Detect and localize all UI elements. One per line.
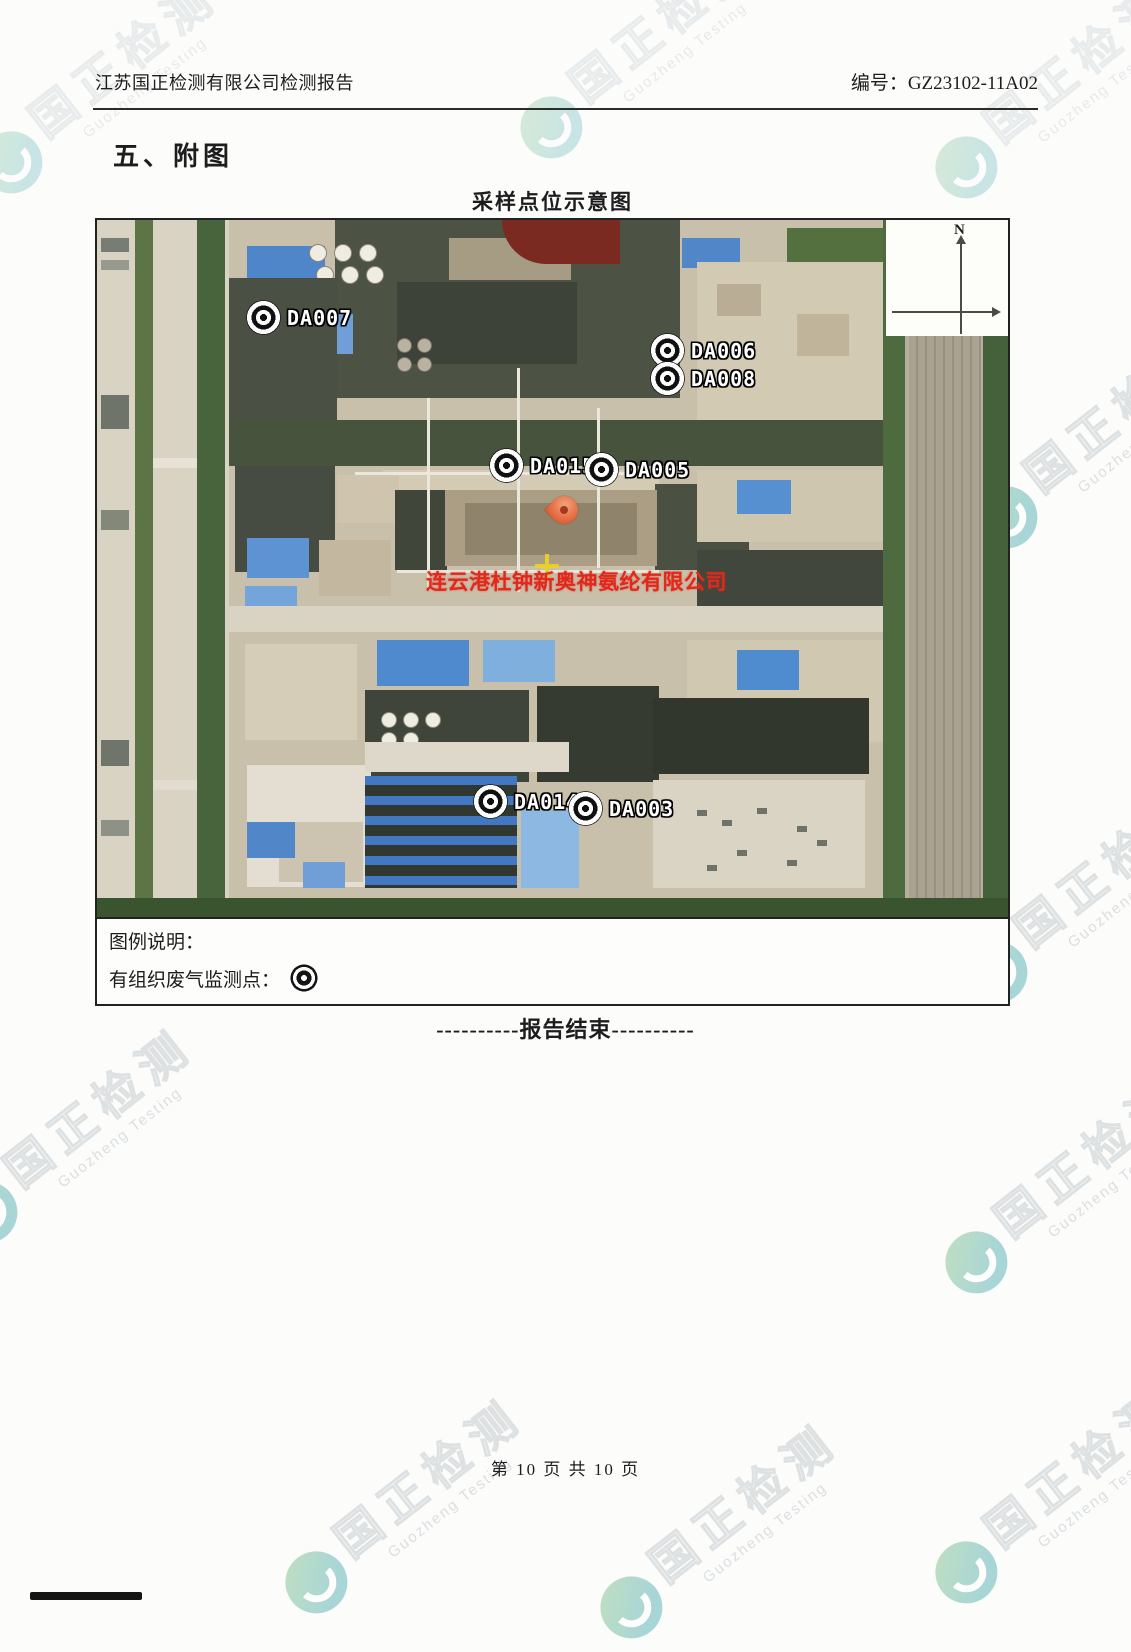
sampling-point-DA005: DA005 bbox=[584, 452, 690, 487]
sampling-map-figure: N DA007 DA006 DA008 DA015 DA005 bbox=[95, 218, 1010, 1006]
guozheng-logo-icon bbox=[588, 1564, 675, 1651]
satellite-imagery: N DA007 DA006 DA008 DA015 DA005 bbox=[97, 220, 1008, 917]
guozheng-logo-icon bbox=[933, 1219, 1020, 1306]
compass: N bbox=[886, 220, 1008, 336]
compass-vertical-axis bbox=[960, 244, 962, 334]
bullseye-icon bbox=[584, 452, 619, 487]
scan-artifact bbox=[30, 1592, 142, 1600]
section-heading: 五、附图 bbox=[113, 136, 233, 173]
company-name-overlay: 连云港杜钟新奥神氨纶有限公司 bbox=[426, 566, 727, 596]
bullseye-legend-icon bbox=[290, 964, 318, 992]
bullseye-icon bbox=[650, 361, 685, 396]
bullseye-icon bbox=[246, 300, 281, 335]
bullseye-icon bbox=[473, 784, 508, 819]
guozheng-watermark: 国正检测Guozheng Testing bbox=[881, 0, 1131, 211]
report-title: 江苏国正检测有限公司检测报告 bbox=[95, 69, 354, 95]
sampling-point-DA015: DA015 bbox=[489, 448, 595, 483]
legend-heading: 图例说明： bbox=[109, 927, 1008, 954]
compass-horizontal-axis bbox=[892, 311, 994, 313]
report-number: 编号：GZ23102-11A02 bbox=[851, 68, 1038, 95]
guozheng-logo-icon bbox=[0, 119, 55, 206]
page-number: 第 10 页 共 10 页 bbox=[0, 1455, 1131, 1480]
bullseye-icon bbox=[489, 448, 524, 483]
guozheng-logo-icon bbox=[508, 84, 595, 171]
page-header: 江苏国正检测有限公司检测报告 编号：GZ23102-11A02 bbox=[95, 68, 1038, 95]
sampling-point-DA007: DA007 bbox=[246, 300, 352, 335]
guozheng-logo-icon bbox=[273, 1539, 360, 1626]
header-rule bbox=[93, 108, 1038, 110]
guozheng-logo-icon bbox=[0, 1169, 30, 1256]
report-end-line: ----------报告结束---------- bbox=[0, 1012, 1131, 1044]
compass-east-arrow-icon bbox=[992, 307, 1001, 317]
map-title: 采样点位示意图 bbox=[95, 186, 1010, 216]
guozheng-watermark: 国正检测Guozheng Testing bbox=[0, 0, 274, 206]
sampling-point-DA014: DA014 bbox=[473, 784, 579, 819]
bullseye-icon bbox=[568, 791, 603, 826]
sampling-point-DA008: DA008 bbox=[650, 361, 756, 396]
legend-item: 有组织废气监测点： bbox=[109, 964, 1008, 992]
legend-item-label: 有组织废气监测点： bbox=[109, 965, 280, 992]
sampling-point-DA003: DA003 bbox=[568, 791, 674, 826]
map-legend: 图例说明： 有组织废气监测点： bbox=[97, 917, 1008, 1004]
compass-north-arrow-icon bbox=[956, 235, 966, 244]
guozheng-watermark: 国正检测Guozheng Testing bbox=[546, 1339, 894, 1651]
guozheng-logo-icon bbox=[923, 1529, 1010, 1616]
